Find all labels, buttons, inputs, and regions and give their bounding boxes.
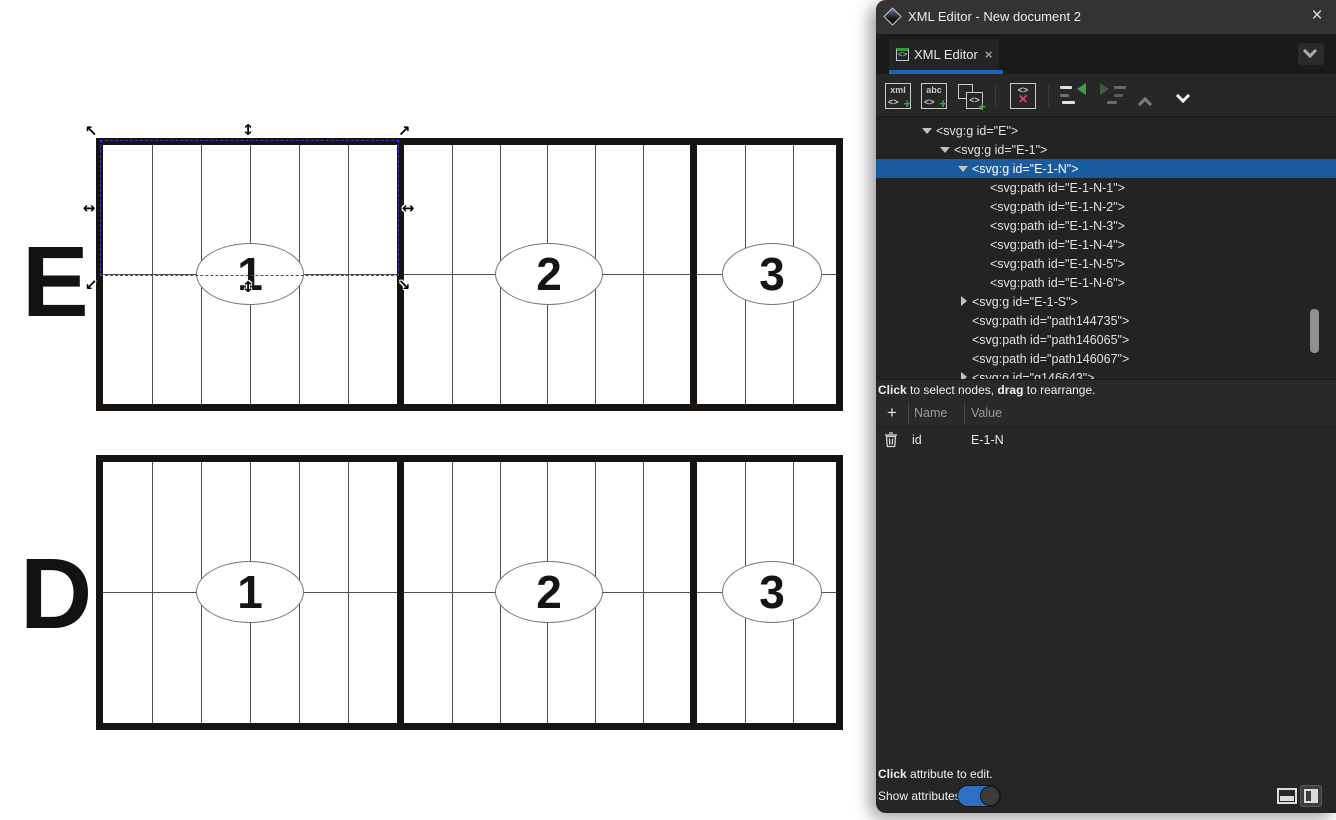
- section-number: 2: [536, 565, 562, 619]
- column-separator: [964, 402, 965, 424]
- add-attribute-button[interactable]: +: [880, 402, 904, 424]
- indent-node-button[interactable]: [1098, 83, 1126, 109]
- tree-node[interactable]: <svg:path id="E-1-N-6">: [876, 273, 1336, 292]
- horizontal-split-button[interactable]: [1277, 788, 1297, 804]
- delete-node-icon: <> ×: [1010, 83, 1036, 109]
- section-number: 2: [536, 247, 562, 301]
- selection-handle-ne[interactable]: ↗: [393, 120, 415, 142]
- show-attributes-label: Show attributes: [878, 783, 961, 809]
- tree-node[interactable]: <svg:path id="E-1-N-5">: [876, 254, 1336, 273]
- chevron-down-icon: [1303, 44, 1317, 58]
- section-ellipse-2[interactable]: 2: [495, 561, 603, 623]
- tree-node-label: <svg:g id="g146643">: [972, 371, 1095, 381]
- tree-node[interactable]: <svg:path id="E-1-N-2">: [876, 197, 1336, 216]
- chevron-up-icon: [1138, 97, 1152, 111]
- tree-node-label: <svg:path id="path146065">: [972, 333, 1129, 347]
- selection-handle-e[interactable]: ↔: [397, 197, 419, 219]
- move-node-down-button[interactable]: [1172, 83, 1198, 109]
- dialog-titlebar[interactable]: XML Editor - New document 2 ×: [876, 0, 1336, 34]
- vertical-scrollbar-thumb[interactable]: [1310, 309, 1319, 353]
- attribute-name[interactable]: id: [912, 427, 922, 453]
- tree-node[interactable]: <svg:path id="E-1-N-4">: [876, 235, 1336, 254]
- chevron-down-icon: [1176, 89, 1190, 103]
- triangle-expander-icon[interactable]: [956, 159, 972, 178]
- attribute-row[interactable]: id E-1-N: [876, 427, 1336, 454]
- column-separator: [908, 402, 909, 424]
- tree-node-label: <svg:path id="E-1-N-3">: [990, 219, 1125, 233]
- delete-node-button[interactable]: <> ×: [1010, 83, 1036, 109]
- tree-node[interactable]: <svg:path id="path144735">: [876, 311, 1336, 330]
- selection-handle-nw[interactable]: ↖: [80, 120, 102, 142]
- trash-icon[interactable]: [884, 432, 898, 448]
- section-number: 3: [759, 247, 785, 301]
- figure-e[interactable]: 1 2 3: [96, 138, 843, 411]
- new-element-node-icon: xml <> +: [885, 83, 911, 109]
- duplicate-node-button[interactable]: <> +: [957, 83, 983, 109]
- tree-node[interactable]: <svg:g id="E-1-S">: [876, 292, 1336, 311]
- selection-handle-n[interactable]: ↕: [237, 119, 259, 141]
- dialog-tabstrip: <> XML Editor ×: [876, 34, 1336, 74]
- section-ellipse-3[interactable]: 3: [722, 561, 822, 623]
- section-ellipse-3[interactable]: 3: [722, 243, 822, 305]
- new-element-node-button[interactable]: xml <> +: [885, 83, 911, 109]
- tree-node-label: <svg:g id="E-1-N">: [972, 162, 1079, 176]
- tab-label: XML Editor: [914, 47, 978, 62]
- tree-node[interactable]: <svg:g id="E-1">: [876, 140, 1336, 159]
- attribute-value[interactable]: E-1-N: [971, 427, 1004, 453]
- new-text-node-icon: abc <> +: [921, 83, 947, 109]
- toolbar-separator: [995, 86, 996, 106]
- xml-node-tree[interactable]: <svg:g id="E"> <svg:g id="E-1"> <svg:g i…: [876, 116, 1336, 380]
- tree-node-label: <svg:path id="E-1-N-4">: [990, 238, 1125, 252]
- vertical-split-button[interactable]: [1300, 785, 1322, 807]
- triangle-expander-icon[interactable]: [956, 292, 972, 311]
- tab-xml-editor[interactable]: <> XML Editor ×: [889, 39, 999, 70]
- selection-handle-w[interactable]: ↔: [78, 197, 100, 219]
- horizontal-split-icon: [1280, 796, 1294, 801]
- tree-node-label: <svg:path id="E-1-N-6">: [990, 276, 1125, 290]
- unindent-node-icon: [1060, 83, 1088, 107]
- tab-close-icon[interactable]: ×: [985, 47, 993, 62]
- section-number: 1: [237, 565, 263, 619]
- column-header-name: Name: [914, 400, 947, 426]
- triangle-expander-icon[interactable]: [956, 368, 972, 380]
- dialog-close-button[interactable]: ×: [1304, 0, 1330, 34]
- toolbar-separator: [1048, 86, 1049, 106]
- selection-handle-sw[interactable]: ↙: [80, 274, 102, 296]
- panel-footer: Show attributes: [876, 783, 1336, 813]
- tree-node[interactable]: <svg:g id="E">: [876, 121, 1336, 140]
- plus-icon: +: [887, 403, 897, 422]
- tree-node[interactable]: <svg:g id="g146643">: [876, 368, 1336, 380]
- vertical-split-icon: [1304, 789, 1318, 803]
- column-header-value: Value: [971, 400, 1002, 426]
- tree-node-label: <svg:path id="E-1-N-2">: [990, 200, 1125, 214]
- unindent-node-button[interactable]: [1060, 83, 1088, 109]
- indent-node-icon: [1098, 83, 1126, 107]
- tree-hint-text: Click to select nodes, drag to rearrange…: [876, 380, 1336, 400]
- figure-label-e[interactable]: E: [22, 232, 87, 332]
- section-divider: [397, 462, 404, 723]
- tree-node-label: <svg:path id="path144735">: [972, 314, 1129, 328]
- tree-node-label: <svg:path id="E-1-N-1">: [990, 181, 1125, 195]
- tree-node-label: <svg:g id="E-1">: [954, 143, 1047, 157]
- tree-node[interactable]: <svg:path id="path146065">: [876, 330, 1336, 349]
- section-divider: [690, 145, 697, 404]
- dialog-title: XML Editor - New document 2: [908, 0, 1081, 34]
- tree-node[interactable]: <svg:path id="path146067">: [876, 349, 1336, 368]
- inkscape-canvas[interactable]: E 1 2 3 ↖ ↕ ↗ ↔ ↔ ↙ ↕ ↘ D: [0, 0, 1336, 820]
- figure-label-d[interactable]: D: [20, 544, 90, 644]
- section-ellipse-1[interactable]: 1: [196, 561, 304, 623]
- triangle-expander-icon[interactable]: [938, 140, 954, 159]
- section-divider: [690, 462, 697, 723]
- xml-editor-tab-icon: <>: [896, 48, 909, 61]
- move-node-up-button[interactable]: [1134, 83, 1160, 109]
- xml-editor-dialog: XML Editor - New document 2 × <> XML Edi…: [876, 0, 1336, 813]
- show-attributes-toggle[interactable]: [957, 785, 1001, 807]
- tree-node[interactable]: <svg:path id="E-1-N-3">: [876, 216, 1336, 235]
- tree-node-selected[interactable]: <svg:g id="E-1-N">: [876, 159, 1336, 178]
- triangle-expander-icon[interactable]: [920, 121, 936, 140]
- tab-overflow-button[interactable]: [1298, 43, 1324, 65]
- tree-node-label: <svg:g id="E-1-S">: [972, 295, 1078, 309]
- tree-node-label: <svg:path id="path146067">: [972, 352, 1129, 366]
- attribute-hint-text: Click attribute to edit.: [876, 766, 1336, 783]
- section-number: 3: [759, 565, 785, 619]
- attributes-header: + Name Value: [876, 400, 1336, 427]
- tree-node[interactable]: <svg:path id="E-1-N-1">: [876, 178, 1336, 197]
- figure-d[interactable]: 1 2 3: [96, 455, 843, 730]
- selection-handle-s[interactable]: ↕: [237, 276, 259, 298]
- new-text-node-button[interactable]: abc <> +: [921, 83, 947, 109]
- tree-node-label: <svg:g id="E">: [936, 124, 1018, 138]
- selection-handle-se[interactable]: ↘: [393, 274, 415, 296]
- inkscape-logo-icon: [883, 7, 901, 25]
- section-ellipse-2[interactable]: 2: [495, 243, 603, 305]
- xml-toolbar: xml <> + abc <> + <> + <>: [876, 74, 1336, 116]
- tree-node-label: <svg:path id="E-1-N-5">: [990, 257, 1125, 271]
- toggle-knob: [980, 786, 1000, 806]
